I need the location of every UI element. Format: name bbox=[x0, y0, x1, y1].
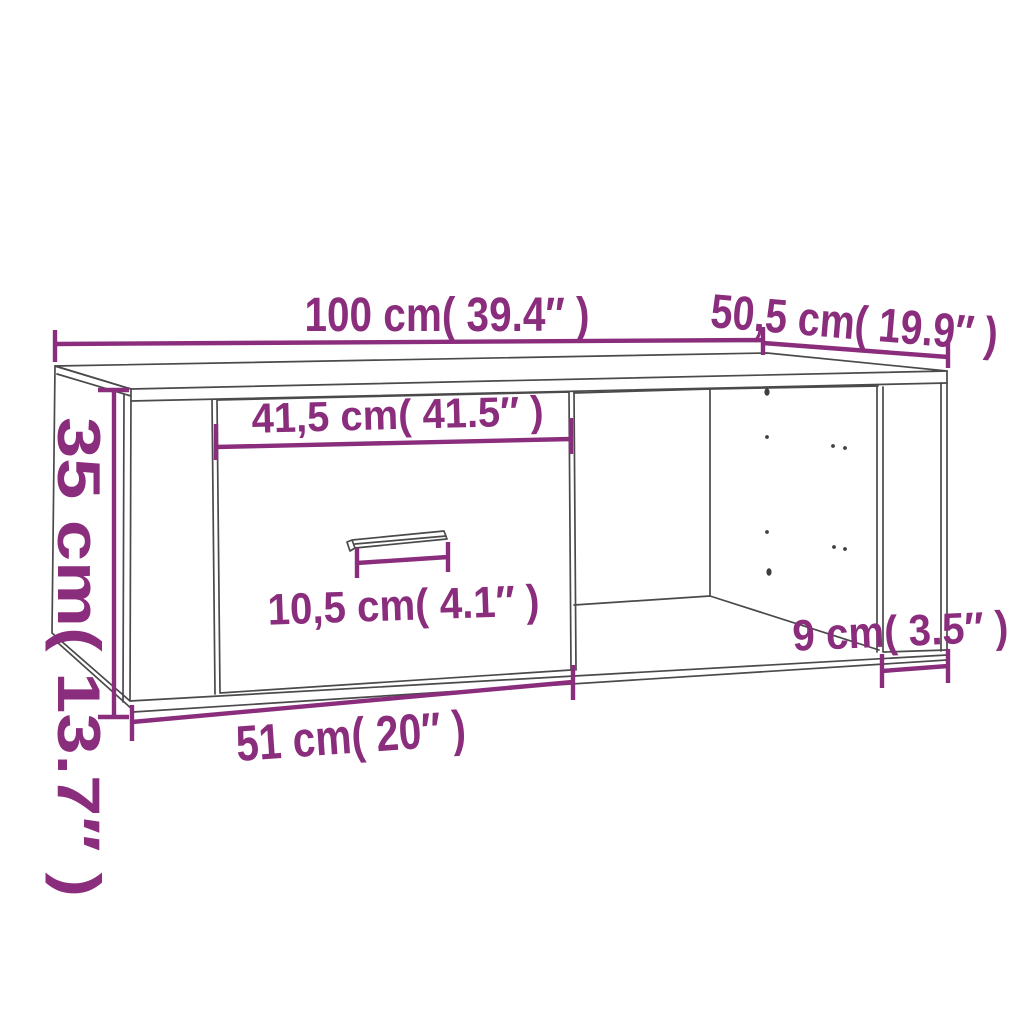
dimension-side-opening-label: 9 cm( 3.5″ ) bbox=[791, 602, 1009, 660]
pin-hole bbox=[832, 545, 836, 549]
dimension-drawer-front-label: 41,5 cm( 41.5″ ) bbox=[251, 387, 544, 442]
dimension-width-label: 100 cm( 39.4″ ) bbox=[305, 289, 590, 342]
pin-hole bbox=[843, 446, 847, 450]
pin-hole bbox=[843, 547, 847, 551]
pin-hole bbox=[765, 435, 769, 439]
background bbox=[0, 0, 1024, 1024]
furniture-dimension-diagram: 100 cm( 39.4″ ) 50,5 cm( 19.9″ ) 35 cm( … bbox=[0, 0, 1024, 1024]
dimension-handle-label: 10,5 cm( 4.1″ ) bbox=[267, 576, 541, 634]
dimension-height-label: 35 cm( 13.7″ ) bbox=[45, 417, 112, 897]
cam-hole-bottom bbox=[766, 568, 771, 576]
pin-hole bbox=[765, 530, 769, 534]
pin-hole bbox=[831, 444, 835, 448]
dimension-diagram-image: 100 cm( 39.4″ ) 50,5 cm( 19.9″ ) 35 cm( … bbox=[0, 0, 1024, 1024]
cam-hole-top bbox=[764, 388, 769, 396]
